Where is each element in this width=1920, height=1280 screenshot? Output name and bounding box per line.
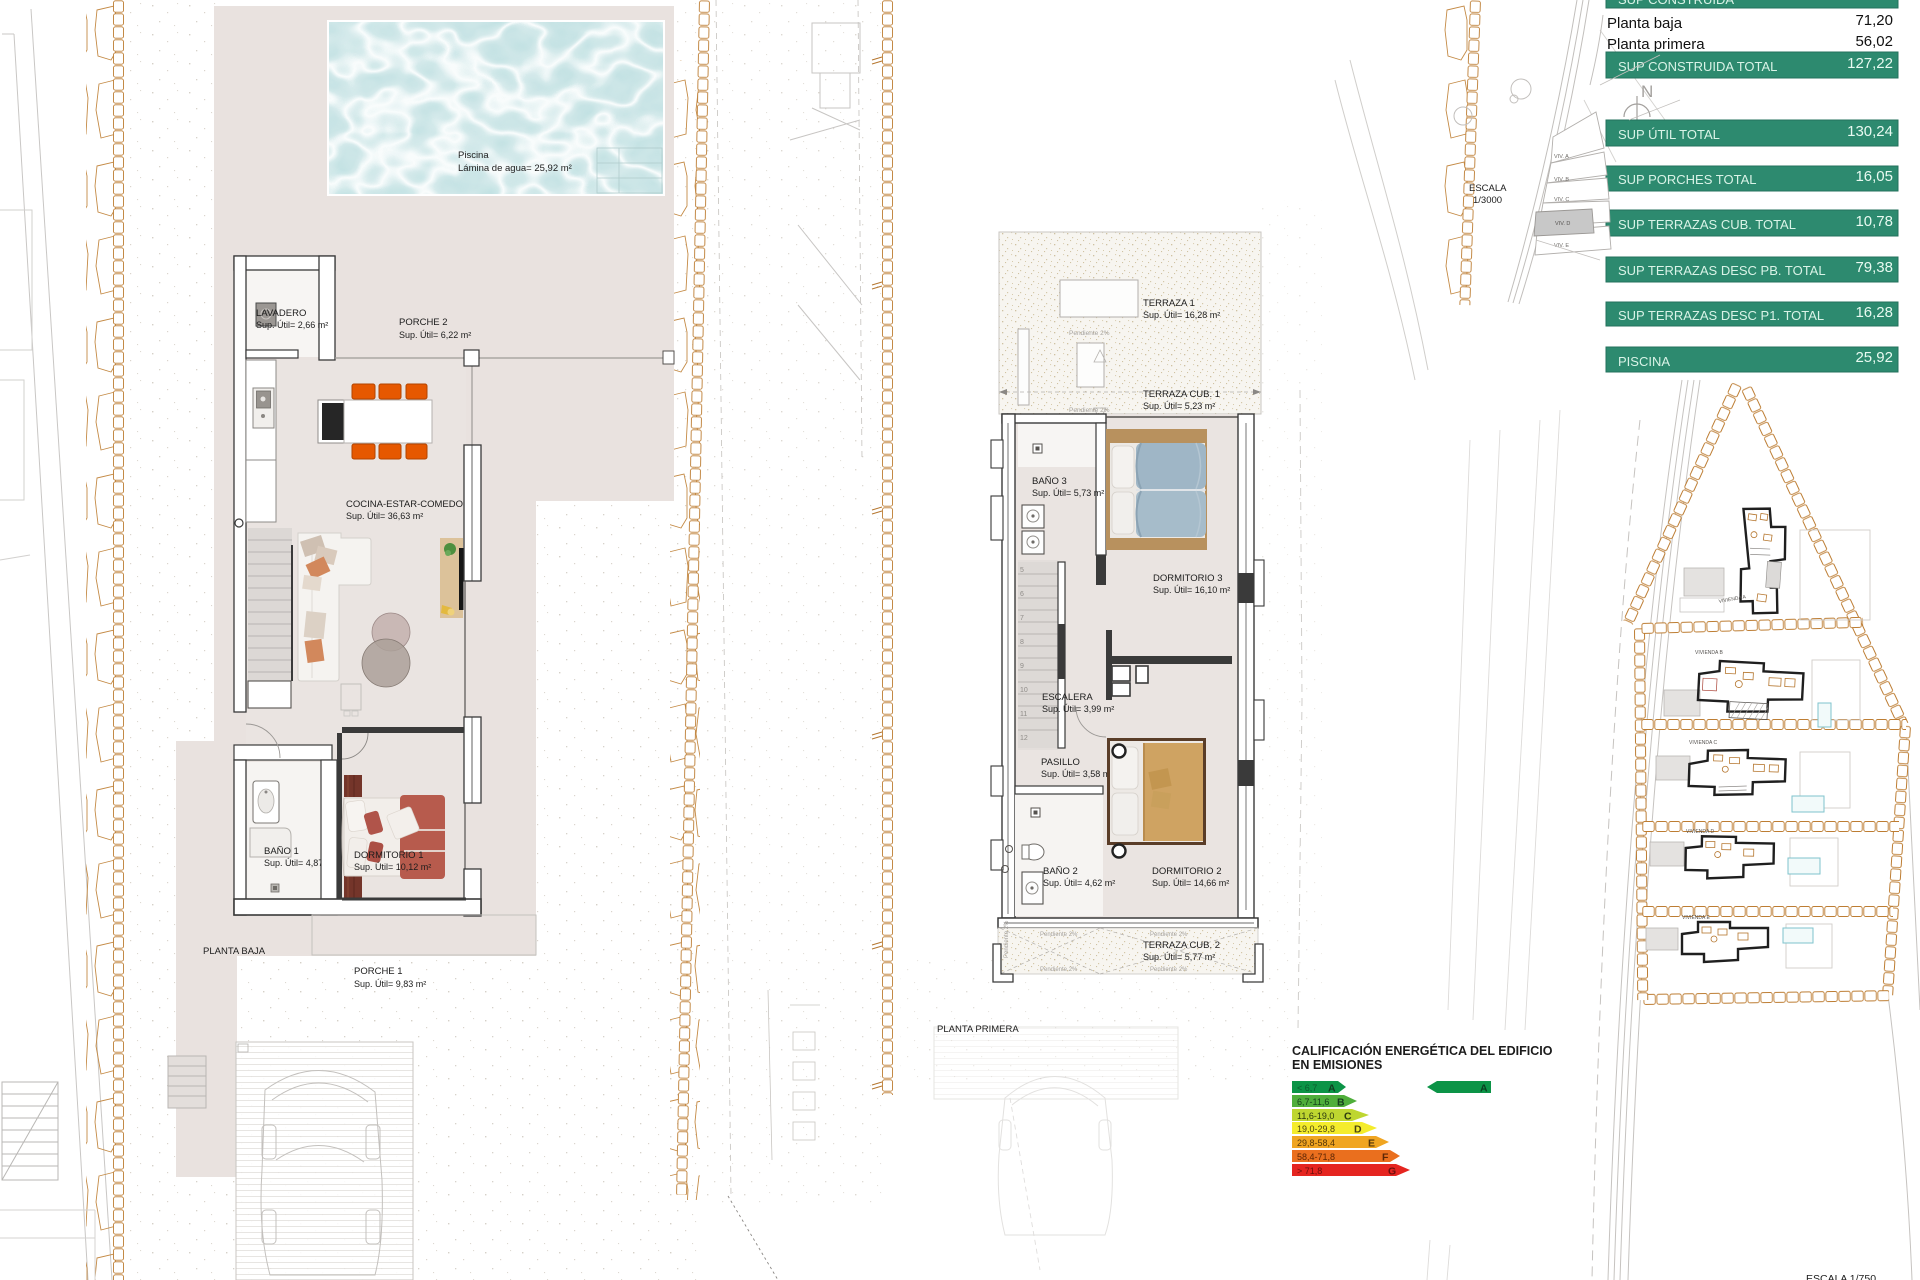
svg-text:DORMITORIO 3: DORMITORIO 3 bbox=[1153, 573, 1223, 584]
svg-text:C: C bbox=[1344, 1111, 1352, 1123]
svg-text:Sup. Útil= 36,63 m²: Sup. Útil= 36,63 m² bbox=[346, 511, 423, 521]
svg-text:B: B bbox=[1337, 1097, 1345, 1109]
svg-text:127,22: 127,22 bbox=[1847, 55, 1893, 72]
svg-text:16,28: 16,28 bbox=[1855, 304, 1893, 321]
svg-text:56,02: 56,02 bbox=[1855, 33, 1893, 50]
svg-text:DORMITORIO 2: DORMITORIO 2 bbox=[1152, 866, 1222, 877]
svg-text:BAÑO 3: BAÑO 3 bbox=[1032, 476, 1067, 487]
svg-text:PORCHE 1: PORCHE 1 bbox=[354, 966, 403, 977]
svg-text:6: 6 bbox=[1020, 591, 1024, 598]
svg-text:Pendiente 2%: Pendiente 2% bbox=[1150, 967, 1188, 973]
svg-text:71,20: 71,20 bbox=[1855, 12, 1893, 29]
svg-text:11: 11 bbox=[1020, 711, 1027, 718]
svg-text:SUP TERRAZAS DESC PB. TOTAL: SUP TERRAZAS DESC PB. TOTAL bbox=[1618, 263, 1826, 278]
svg-text:Sup. Útil= 14,66 m²: Sup. Útil= 14,66 m² bbox=[1152, 878, 1229, 888]
svg-text:Piscina: Piscina bbox=[458, 150, 489, 161]
svg-text:VIVIENDA D: VIVIENDA D bbox=[1686, 829, 1714, 835]
svg-text:130,24: 130,24 bbox=[1847, 123, 1893, 140]
svg-text:12: 12 bbox=[1020, 735, 1028, 742]
svg-text:G: G bbox=[1388, 1166, 1396, 1178]
svg-text:SUP PORCHES TOTAL: SUP PORCHES TOTAL bbox=[1618, 172, 1756, 187]
svg-text:EN EMISIONES: EN EMISIONES bbox=[1292, 1058, 1382, 1072]
svg-text:ESCALERA: ESCALERA bbox=[1042, 692, 1093, 703]
svg-text:Sup. Útil= 10,12 m²: Sup. Útil= 10,12 m² bbox=[354, 862, 431, 872]
svg-text:Sup. Útil= 16,10 m²: Sup. Útil= 16,10 m² bbox=[1153, 585, 1230, 595]
svg-text:Planta baja: Planta baja bbox=[1607, 15, 1683, 32]
svg-text:A: A bbox=[1328, 1083, 1336, 1095]
svg-text:Sup. Útil= 5,77 m²: Sup. Útil= 5,77 m² bbox=[1143, 952, 1215, 962]
svg-text:16,05: 16,05 bbox=[1855, 168, 1893, 185]
svg-text:9: 9 bbox=[1020, 663, 1024, 670]
svg-text:Planta primera: Planta primera bbox=[1607, 36, 1705, 53]
svg-text:7: 7 bbox=[1020, 615, 1024, 622]
svg-text:LAVADERO: LAVADERO bbox=[256, 308, 306, 319]
svg-text:Sup. Útil= 9,83 m²: Sup. Útil= 9,83 m² bbox=[354, 979, 426, 989]
svg-text:< 6,7: < 6,7 bbox=[1297, 1083, 1317, 1093]
svg-text:SUP TERRAZAS DESC P1. TOTAL: SUP TERRAZAS DESC P1. TOTAL bbox=[1618, 308, 1824, 323]
svg-text:Sup. Útil= 5,73 m²: Sup. Útil= 5,73 m² bbox=[1032, 488, 1104, 498]
svg-text:VIVIENDA B: VIVIENDA B bbox=[1695, 650, 1723, 656]
svg-text:BAÑO 2: BAÑO 2 bbox=[1043, 866, 1078, 877]
svg-text:Sup. Útil= 16,28 m²: Sup. Útil= 16,28 m² bbox=[1143, 310, 1220, 320]
svg-text:Pendiente 2%: Pendiente 2% bbox=[1004, 920, 1010, 958]
svg-text:TERRAZA CUB. 2: TERRAZA CUB. 2 bbox=[1143, 940, 1220, 951]
svg-text:BAÑO 1: BAÑO 1 bbox=[264, 846, 299, 857]
svg-text:Lámina de agua= 25,92 m²: Lámina de agua= 25,92 m² bbox=[458, 163, 572, 174]
svg-text:TERRAZA 1: TERRAZA 1 bbox=[1143, 298, 1195, 309]
svg-text:PLANTA BAJA: PLANTA BAJA bbox=[203, 946, 266, 957]
svg-text:N: N bbox=[1641, 82, 1653, 101]
svg-text:Sup. Útil= 3,99 m²: Sup. Útil= 3,99 m² bbox=[1042, 704, 1114, 714]
svg-text:> 71,8: > 71,8 bbox=[1297, 1166, 1322, 1176]
svg-text:11,6-19,0: 11,6-19,0 bbox=[1297, 1111, 1334, 1121]
svg-text:1/3000: 1/3000 bbox=[1473, 195, 1502, 206]
svg-text:ESCALA: ESCALA bbox=[1469, 183, 1507, 194]
svg-text:SUP CONSTRUIDA TOTAL: SUP CONSTRUIDA TOTAL bbox=[1618, 59, 1777, 74]
svg-text:PISCINA: PISCINA bbox=[1618, 354, 1670, 369]
svg-text:SUP CONSTRUIDA: SUP CONSTRUIDA bbox=[1618, 0, 1734, 7]
svg-text:VIV. C: VIV. C bbox=[1554, 197, 1569, 203]
svg-text:Pendiente 2%: Pendiente 2% bbox=[1040, 967, 1078, 973]
svg-text:SUP TERRAZAS CUB. TOTAL: SUP TERRAZAS CUB. TOTAL bbox=[1618, 217, 1796, 232]
svg-text:19,0-29,8: 19,0-29,8 bbox=[1297, 1124, 1335, 1134]
svg-text:79,38: 79,38 bbox=[1855, 259, 1893, 276]
svg-text:Pendiente 2%: Pendiente 2% bbox=[1150, 932, 1188, 938]
svg-text:ESCALA 1/750: ESCALA 1/750 bbox=[1806, 1273, 1876, 1280]
svg-text:VIVIENDA C: VIVIENDA C bbox=[1689, 740, 1717, 746]
svg-text:5: 5 bbox=[1020, 567, 1024, 574]
svg-text:10,78: 10,78 bbox=[1855, 213, 1893, 230]
svg-text:10: 10 bbox=[1020, 687, 1028, 694]
svg-text:Sup. Útil= 2,66 m²: Sup. Útil= 2,66 m² bbox=[256, 320, 328, 330]
svg-text:Sup. Útil= 4,62 m²: Sup. Útil= 4,62 m² bbox=[1043, 878, 1115, 888]
svg-text:58,4-71,8: 58,4-71,8 bbox=[1297, 1152, 1335, 1162]
svg-text:COCINA-ESTAR-COMEDOR: COCINA-ESTAR-COMEDOR bbox=[346, 499, 470, 510]
svg-text:Pendiente 2%: Pendiente 2% bbox=[1069, 330, 1110, 337]
svg-text:Sup. Útil= 6,22 m²: Sup. Útil= 6,22 m² bbox=[399, 330, 471, 340]
svg-text:8: 8 bbox=[1020, 639, 1024, 646]
svg-text:PORCHE 2: PORCHE 2 bbox=[399, 317, 448, 328]
svg-text:SUP ÚTIL TOTAL: SUP ÚTIL TOTAL bbox=[1618, 127, 1720, 142]
svg-text:PLANTA PRIMERA: PLANTA PRIMERA bbox=[937, 1024, 1019, 1035]
svg-text:29,8-58,4: 29,8-58,4 bbox=[1297, 1138, 1335, 1148]
svg-text:F: F bbox=[1382, 1152, 1389, 1164]
svg-text:E: E bbox=[1368, 1138, 1375, 1150]
svg-text:CALIFICACIÓN ENERGÉTICA DEL ED: CALIFICACIÓN ENERGÉTICA DEL EDIFICIO bbox=[1292, 1043, 1553, 1058]
svg-text:VIV. B: VIV. B bbox=[1554, 177, 1569, 183]
svg-text:PASILLO: PASILLO bbox=[1041, 757, 1080, 768]
svg-text:VIVIENDA E: VIVIENDA E bbox=[1682, 915, 1710, 921]
svg-text:25,92: 25,92 bbox=[1855, 349, 1893, 366]
svg-text:A: A bbox=[1480, 1083, 1488, 1095]
svg-text:TERRAZA CUB. 1: TERRAZA CUB. 1 bbox=[1143, 389, 1220, 400]
svg-text:Pendiente 2%: Pendiente 2% bbox=[1040, 932, 1078, 938]
svg-text:DORMITORIO 1: DORMITORIO 1 bbox=[354, 850, 424, 861]
svg-text:VIV. D: VIV. D bbox=[1555, 221, 1570, 227]
svg-text:D: D bbox=[1354, 1124, 1362, 1136]
svg-text:Sup. Útil= 5,23 m²: Sup. Útil= 5,23 m² bbox=[1143, 401, 1215, 411]
svg-text:6,7-11,6: 6,7-11,6 bbox=[1297, 1097, 1329, 1107]
svg-text:Sup. Útil= 3,58 m²: Sup. Útil= 3,58 m² bbox=[1041, 769, 1113, 779]
svg-text:VIV. A: VIV. A bbox=[1554, 154, 1569, 160]
